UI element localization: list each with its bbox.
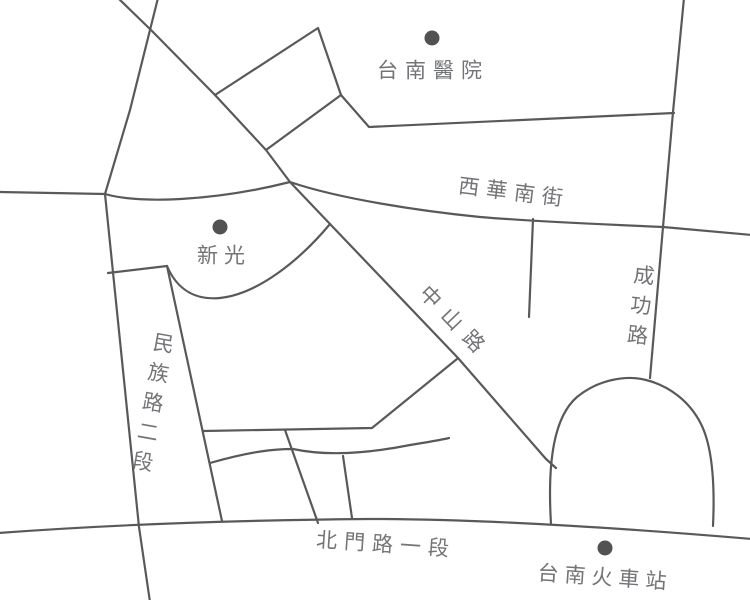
hospital-block-inner-line xyxy=(266,95,341,150)
tainan-hospital-dot xyxy=(425,31,440,46)
station-dome-line xyxy=(550,378,714,526)
mid-horizontal-road-line xyxy=(203,359,457,431)
label-tainan-hospital: 台南醫院 xyxy=(377,61,489,82)
access-map: { "colors": { "road_line": "#58595b", "m… xyxy=(0,0,750,600)
xihua-branch-line xyxy=(529,219,533,317)
zhongshan-road-line xyxy=(118,0,556,468)
shinkong-dot xyxy=(213,220,228,235)
tainan-train-station-dot xyxy=(598,541,613,556)
location-pin-icon xyxy=(391,228,416,272)
minzu-road-cap-line xyxy=(108,266,167,273)
west-horizontal-road-line xyxy=(0,192,105,194)
upper-left-road-line xyxy=(105,0,158,194)
location-pin-hole xyxy=(399,234,408,243)
minzu-road-right-line xyxy=(167,266,222,521)
wavy-lane-line xyxy=(210,438,449,463)
poi-dots xyxy=(213,31,613,556)
label-shinkong: 新光 xyxy=(197,246,251,267)
chenggong-road-line xyxy=(650,0,684,378)
lane-vertical-line xyxy=(343,456,352,518)
shinkong-road-line xyxy=(105,182,290,200)
mid-branch-line xyxy=(285,430,318,523)
